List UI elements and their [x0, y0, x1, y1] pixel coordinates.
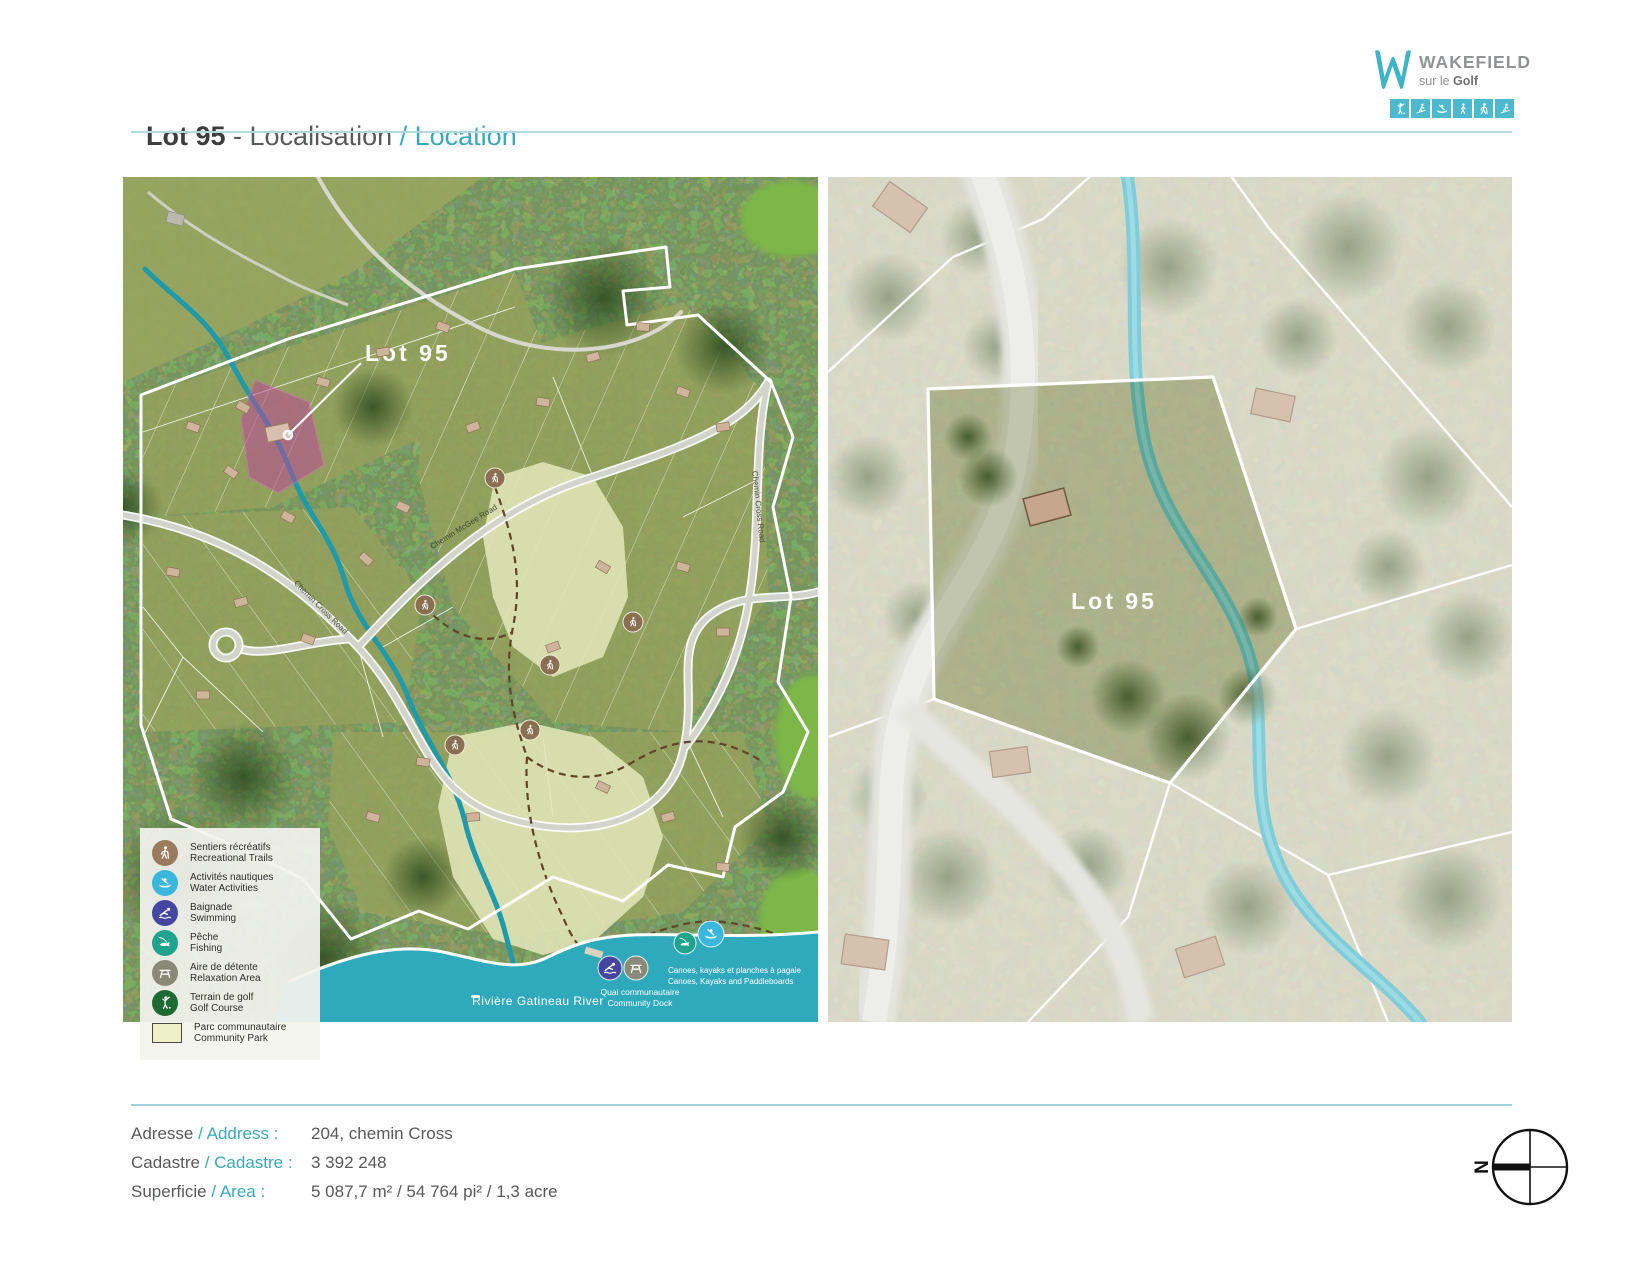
area-value: 5 087,7 m² / 54 764 pi² / 1,3 acre: [311, 1182, 558, 1202]
property-details: Adresse / Address : 204, chemin Cross Ca…: [131, 1124, 558, 1211]
address-label-en: / Address :: [198, 1124, 278, 1143]
wakefield-logo: WAKEFIELD sur le Golf: [1374, 50, 1514, 118]
maps-row: Lot 95: [123, 177, 1512, 1022]
compass-north-bar: [1493, 1164, 1530, 1171]
canoe-icon: [152, 870, 178, 896]
river-label: Rivière Gatineau River: [472, 994, 604, 1008]
logo-brand-text: WAKEFIELD: [1419, 52, 1531, 73]
page-title: Lot 95 - Localisation / Location: [131, 90, 517, 152]
details-divider: [131, 1104, 1512, 1106]
address-label-fr: Adresse: [131, 1124, 198, 1143]
area-label-en: / Area :: [211, 1182, 265, 1201]
legend-item-trails: Sentiers récréatifsRecreational Trails: [152, 840, 312, 866]
legend-item-water-activities: Activités nautiquesWater Activities: [152, 870, 312, 896]
left-map: Lot 95: [123, 177, 818, 1022]
fishing-icon: [674, 932, 696, 954]
cadastre-value: 3 392 248: [311, 1153, 387, 1173]
xc-ski-icon: [1495, 99, 1514, 118]
legend-item-fishing: PêcheFishing: [152, 930, 312, 956]
detail-row-area: Superficie / Area : 5 087,7 m² / 54 764 …: [131, 1182, 558, 1202]
dock-label-en: Community Dock: [608, 998, 673, 1008]
logo-activity-icons: [1374, 99, 1514, 118]
right-map: Lot 95: [828, 177, 1512, 1022]
page-title-lot: Lot 95: [146, 121, 226, 151]
golf-icon: [1390, 99, 1409, 118]
header-divider: [131, 131, 1512, 133]
map-legend: Sentiers récréatifsRecreational Trails A…: [140, 828, 320, 1060]
walk-icon: [1453, 99, 1472, 118]
cadastre-label-fr: Cadastre: [131, 1153, 205, 1172]
park-swatch: [152, 1023, 182, 1043]
fish-icon: [152, 930, 178, 956]
page-title-en: / Location: [400, 121, 517, 151]
swimmer-icon: [152, 900, 178, 926]
address-value: 204, chemin Cross: [311, 1124, 453, 1144]
area-label-fr: Superficie: [131, 1182, 211, 1201]
watersports-icon: [698, 921, 724, 947]
legend-item-swimming: BaignadeSwimming: [152, 900, 312, 926]
hike-icon: [1474, 99, 1493, 118]
page-title-fr: - Localisation: [226, 121, 400, 151]
ski-icon: [1411, 99, 1430, 118]
detail-row-address: Adresse / Address : 204, chemin Cross: [131, 1124, 558, 1144]
picnic-table-icon: [152, 960, 178, 986]
hiker-icon: [152, 840, 178, 866]
right-map-lot-label: Lot 95: [1071, 588, 1157, 614]
cadastre-label-en: / Cadastre :: [205, 1153, 293, 1172]
golfer-icon: [152, 990, 178, 1016]
relaxation-icon: [624, 956, 648, 980]
compass-north-label: N: [1472, 1160, 1493, 1174]
legend-item-relaxation: Aire de détenteRelaxation Area: [152, 960, 312, 986]
watersports-label-fr: Canoes, kayaks et planches à pagaie: [668, 966, 802, 975]
canoe-icon: [1432, 99, 1451, 118]
watersports-label-en: Canoes, Kayaks and Paddleboards: [668, 977, 793, 986]
logo-tagline: sur le Golf: [1419, 74, 1531, 88]
detail-row-cadastre: Cadastre / Cadastre : 3 392 248: [131, 1153, 558, 1173]
dock-label-fr: Quai communautaire: [601, 987, 680, 997]
swimming-icon: [598, 956, 622, 980]
legend-item-community-park: Parc communautaireCommunity Park: [152, 1020, 312, 1046]
compass-rose: N: [1470, 1127, 1572, 1214]
wakefield-w-icon: [1374, 50, 1412, 95]
legend-item-golf: Terrain de golfGolf Course: [152, 990, 312, 1016]
